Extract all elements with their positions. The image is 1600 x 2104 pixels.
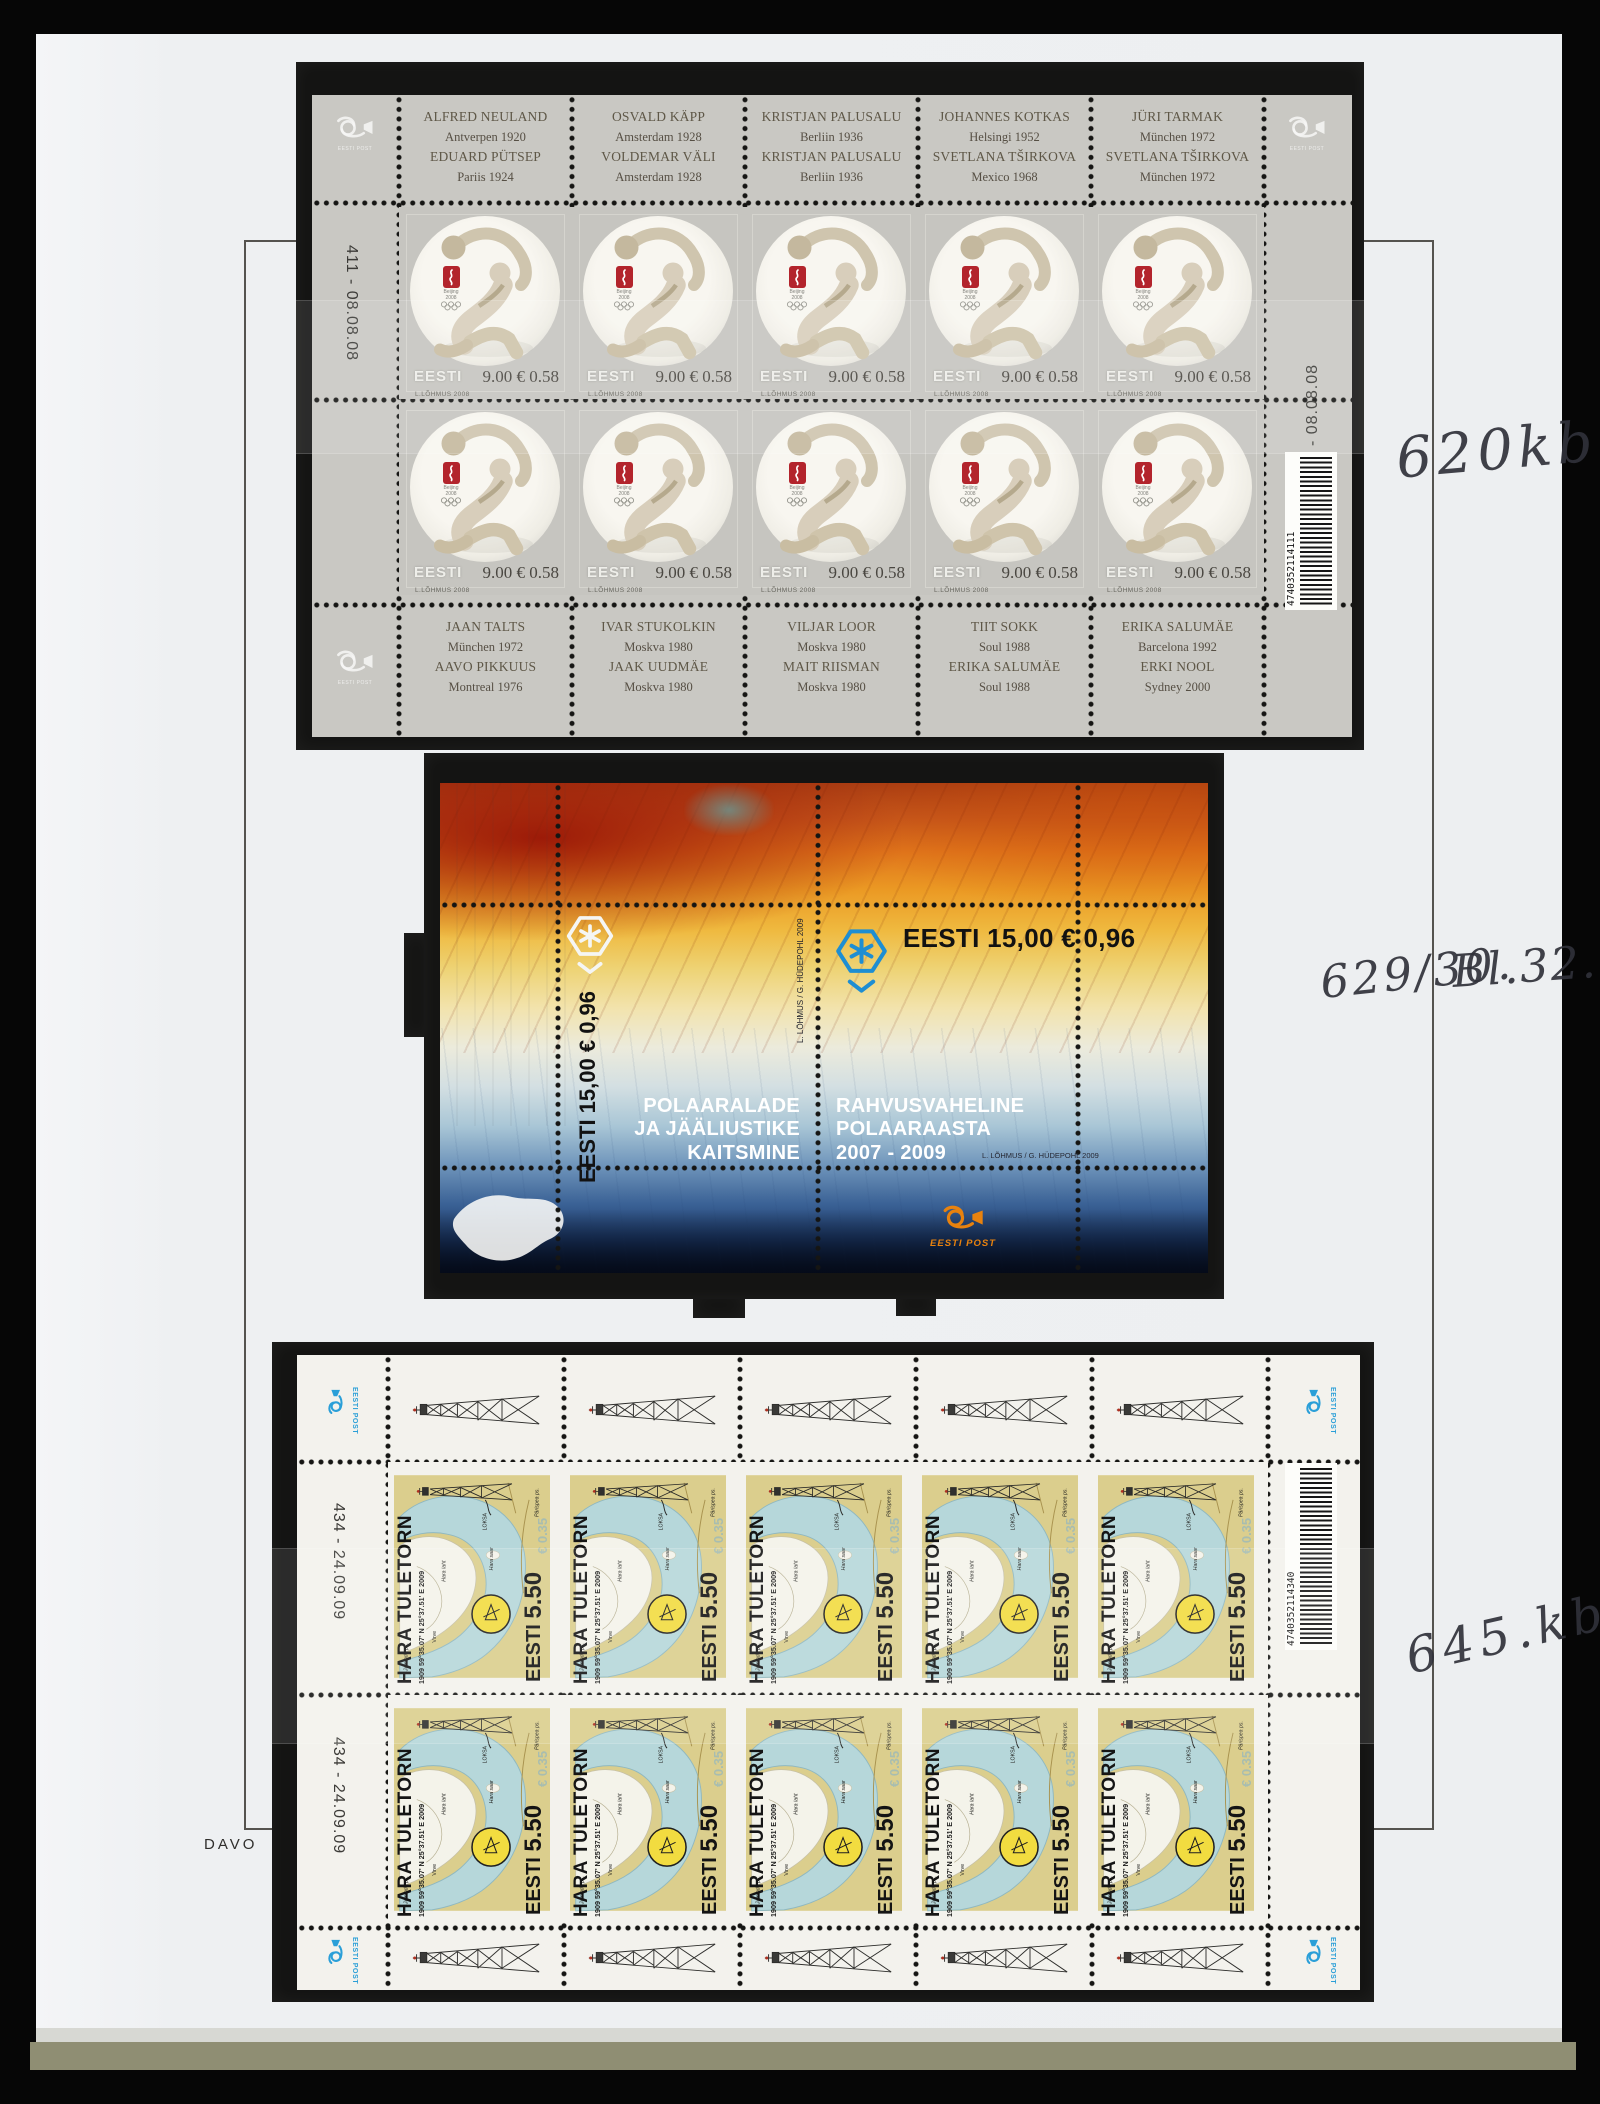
lighthouse-lattice-icon — [411, 1939, 541, 1977]
page-stack-edge — [36, 2028, 1562, 2042]
stamp-country: EESTI — [760, 564, 808, 581]
beijing-emblem-seal — [1135, 266, 1152, 288]
perforation — [1075, 783, 1081, 1273]
eesti-post-logo-blue: EESTI POST — [321, 1385, 365, 1434]
eesti-post-ghost-logo: EESTI POST — [328, 113, 382, 152]
stamp-credit: L.LÕHMUS 2008 — [588, 587, 643, 594]
olympic-rings-icon — [958, 497, 982, 507]
perforation — [440, 1165, 1208, 1171]
svg-text:Virve: Virve — [960, 1864, 966, 1876]
medallist-label: ALFRED NEULANDAntverpen 1920EDUARD PÜTSE… — [399, 107, 572, 186]
svg-text:Hara saar: Hara saar — [1193, 1780, 1199, 1803]
svg-text:Virve: Virve — [1136, 1864, 1142, 1876]
stamp-value: 9.00 € 0.58 — [483, 563, 560, 583]
beijing-2008-text: Beijing 2008 — [611, 485, 637, 497]
eesti-post-logo-blue: EESTI POST — [1299, 1385, 1343, 1434]
stamp-title: HARA TULETORN — [1099, 1717, 1123, 1917]
stamp-country-value: EESTI 5.50 — [872, 1723, 900, 1915]
svg-text:LOKSA: LOKSA — [658, 1745, 664, 1763]
lighthouse-lattice-icon — [587, 1939, 717, 1977]
posthorn-icon — [1284, 113, 1330, 141]
beijing-2008-emblem: Beijing 2008 — [957, 462, 983, 507]
dancing-figure-icon — [443, 266, 460, 288]
stamp-credit: L.LÕHMUS 2008 — [934, 587, 989, 594]
svg-text:LOKSA: LOKSA — [834, 1512, 840, 1530]
posthorn-icon — [1297, 1937, 1331, 1967]
beijing-emblem-seal — [789, 266, 806, 288]
svg-text:Hara saar: Hara saar — [841, 1780, 847, 1803]
posthorn-icon — [332, 647, 378, 675]
eesti-post-logo-blue: EESTI POST — [1299, 1935, 1343, 1984]
stamp-value: 9.00 € 0.58 — [1175, 563, 1252, 583]
beijing-2008-text: Beijing 2008 — [438, 485, 464, 497]
medallist-label: TIIT SOKKSoul 1988ERIKA SALUMÄESoul 1988 — [918, 617, 1091, 696]
posthorn-icon — [1297, 1387, 1331, 1417]
dancing-figure-icon — [616, 266, 633, 288]
handwritten-note-2b: Bl.32. — [1450, 935, 1599, 998]
svg-text:LOKSA: LOKSA — [1010, 1745, 1016, 1763]
svg-text:Hara saar: Hara saar — [665, 1780, 671, 1803]
stamp-credit: L.LÕHMUS 2008 — [415, 587, 470, 594]
lighthouse-lattice-icon — [1115, 1939, 1245, 1977]
svg-text:Virve: Virve — [432, 1864, 438, 1876]
eesti-post-logo-orange: EESTI POST — [918, 1203, 1008, 1249]
medallist-label: KRISTJAN PALUSALUBerliin 1936KRISTJAN PA… — [745, 107, 918, 186]
beijing-emblem-seal — [443, 462, 460, 484]
stamp-country: EESTI — [933, 564, 981, 581]
svg-text:LOKSA: LOKSA — [658, 1512, 664, 1530]
beijing-emblem-seal — [1135, 462, 1152, 484]
svg-text:LOKSA: LOKSA — [1186, 1745, 1192, 1763]
beijing-emblem-seal — [616, 266, 633, 288]
barcode-bars — [1300, 457, 1332, 605]
perforation — [312, 200, 1352, 206]
perforation — [815, 783, 821, 1273]
svg-text:Hara laht: Hara laht — [793, 1793, 799, 1815]
beijing-emblem-seal — [616, 462, 633, 484]
left-stamp-caption: POLAARALADE JA JÄÄLIUSTIKE KAITSMINE — [615, 1095, 800, 1165]
olympic-rings-icon — [439, 497, 463, 507]
beijing-2008-emblem: Beijing 2008 — [784, 462, 810, 507]
designer-credit: L. LÕHMUS / G. HÜDEPOHL 2009 — [982, 1151, 1099, 1160]
stamp-country-value: EESTI 5.50 — [1048, 1723, 1076, 1915]
plate-number-left: 434 - 24.09.09 — [329, 1737, 347, 1922]
stamp-coordinates: 1909 59°35.07' N 25°37.51' E 2009 — [593, 1719, 605, 1917]
svg-text:Hara saar: Hara saar — [489, 1780, 495, 1803]
davo-brand-label: DAVO — [204, 1836, 257, 1853]
lighthouse-lattice-icon — [939, 1391, 1069, 1429]
scanned-album-photo: DAVO EESTI POST EESTI POST EESTI POST 41… — [0, 0, 1600, 2104]
svg-text:LOKSA: LOKSA — [482, 1512, 488, 1530]
olympic-rings-icon — [612, 497, 636, 507]
beijing-2008-emblem: Beijing 2008 — [438, 462, 464, 507]
perforation — [312, 602, 1352, 608]
svg-text:Hara laht: Hara laht — [1145, 1793, 1151, 1815]
stamp-credit: L.LÕHMUS 2008 — [1107, 587, 1162, 594]
polar-souvenir-sheet: EESTI 15,00 € 0,96 EESTI 15,00 € 0,96 L.… — [440, 783, 1208, 1273]
medallist-label: ERIKA SALUMÄEBarcelona 1992ERKI NOOLSydn… — [1091, 617, 1264, 696]
stamp-country: EESTI — [1106, 564, 1154, 581]
barcode-digits: 4740352114111 — [1286, 456, 1297, 606]
dancing-figure-icon — [1135, 462, 1152, 484]
beijing-emblem-seal — [789, 462, 806, 484]
posthorn-icon — [319, 1937, 353, 1967]
beijing-emblem-seal — [962, 462, 979, 484]
page-stack-edge-lower — [30, 2042, 1576, 2070]
stamp-coordinates: 1909 59°35.07' N 25°37.51' E 2009 — [417, 1719, 429, 1917]
lighthouse-lattice-icon — [411, 1391, 541, 1429]
stamp-value: 9.00 € 0.58 — [829, 563, 906, 583]
mount-film-seam — [296, 300, 1364, 454]
beijing-2008-text: Beijing 2008 — [1130, 485, 1156, 497]
beijing-2008-text: Beijing 2008 — [784, 485, 810, 497]
stamp-title: HARA TULETORN — [395, 1717, 419, 1917]
stamp-country: EESTI — [414, 564, 462, 581]
polar-year-logo-white — [565, 913, 615, 977]
dancing-figure-icon — [443, 462, 460, 484]
lighthouse-lattice-icon — [939, 1939, 1069, 1977]
sheet2-value-vertical: EESTI 15,00 € 0,96 — [575, 978, 601, 1183]
sheet2-value: EESTI 15,00 € 0,96 — [903, 923, 1135, 954]
svg-text:Hara laht: Hara laht — [969, 1793, 975, 1815]
stamp-title: HARA TULETORN — [923, 1717, 947, 1917]
svg-text:Virve: Virve — [608, 1864, 614, 1876]
stamp-title: HARA TULETORN — [571, 1717, 595, 1917]
medallist-label: VILJAR LOORMoskva 1980MAIT RIISMANMoskva… — [745, 617, 918, 696]
beijing-2008-emblem: Beijing 2008 — [1130, 462, 1156, 507]
medallist-label: OSVALD KÄPPAmsterdam 1928VOLDEMAR VÄLIAm… — [572, 107, 745, 186]
svg-text:LOKSA: LOKSA — [834, 1745, 840, 1763]
beijing-emblem-seal — [962, 266, 979, 288]
beijing-emblem-seal — [443, 266, 460, 288]
olympic-rings-icon — [785, 497, 809, 507]
eesti-post-logo-blue: EESTI POST — [321, 1935, 365, 1984]
posthorn-icon — [332, 113, 378, 141]
dancing-figure-icon — [962, 266, 979, 288]
perforation — [440, 902, 1208, 908]
lighthouse-lattice-icon — [587, 1391, 717, 1429]
polar-year-logo-blue — [834, 926, 889, 996]
posthorn-icon — [319, 1387, 353, 1417]
stamp-credit: L.LÕHMUS 2008 — [761, 587, 816, 594]
stamp-country: EESTI — [587, 564, 635, 581]
stamp-coordinates: 1909 59°35.07' N 25°37.51' E 2009 — [945, 1719, 957, 1917]
eesti-post-ghost-logo: EESTI POST — [1280, 113, 1334, 152]
beijing-2008-emblem: Beijing 2008 — [611, 462, 637, 507]
stamp-value: 9.00 € 0.58 — [1002, 563, 1079, 583]
dancing-figure-icon — [1135, 266, 1152, 288]
stamp-value: 9.00 € 0.58 — [656, 563, 733, 583]
dancing-figure-icon — [616, 462, 633, 484]
stamp-title: HARA TULETORN — [747, 1717, 771, 1917]
designer-credit-vertical: L. LÕHMUS / G. HÜDEPOHL 2009 — [796, 918, 805, 1043]
lighthouse-lattice-icon — [763, 1939, 893, 1977]
posthorn-icon — [937, 1203, 989, 1233]
stamp-country-value: EESTI 5.50 — [696, 1723, 724, 1915]
svg-text:LOKSA: LOKSA — [1186, 1512, 1192, 1530]
medallist-label: JOHANNES KOTKASHelsingi 1952SVETLANA TŠI… — [918, 107, 1091, 186]
stamp-coordinates: 1909 59°35.07' N 25°37.51' E 2009 — [1121, 1719, 1133, 1917]
perforation — [297, 1925, 1360, 1931]
barcode: 4740352114111 — [1285, 452, 1337, 610]
dancing-figure-icon — [789, 266, 806, 288]
lighthouse-lattice-icon — [1115, 1391, 1245, 1429]
eesti-post-ghost-logo: EESTI POST — [328, 647, 382, 686]
dancing-figure-icon — [962, 462, 979, 484]
medallist-label: JAAN TALTSMünchen 1972AAVO PIKKUUSMontre… — [399, 617, 572, 696]
stamp-coordinates: 1909 59°35.07' N 25°37.51' E 2009 — [769, 1719, 781, 1917]
dancing-figure-icon — [789, 462, 806, 484]
svg-text:Virve: Virve — [784, 1864, 790, 1876]
svg-text:Hara laht: Hara laht — [441, 1793, 447, 1815]
svg-text:Hara saar: Hara saar — [1017, 1780, 1023, 1803]
medallist-label: JÜRI TARMAKMünchen 1972SVETLANA TŠIRKOVA… — [1091, 107, 1264, 186]
svg-text:LOKSA: LOKSA — [1010, 1512, 1016, 1530]
perforation — [555, 783, 561, 1273]
lighthouse-lattice-icon — [763, 1391, 893, 1429]
svg-text:Hara laht: Hara laht — [617, 1793, 623, 1815]
medallist-label: IVAR STUKOLKINMoskva 1980JAAK UUDMÄEMosk… — [572, 617, 745, 696]
mount-film-seam — [272, 1548, 1374, 1744]
stamp-country-value: EESTI 5.50 — [520, 1723, 548, 1915]
olympic-rings-icon — [1131, 497, 1155, 507]
svg-text:LOKSA: LOKSA — [482, 1745, 488, 1763]
antarctica-map — [446, 1181, 571, 1267]
teal-smudge — [685, 785, 773, 835]
beijing-2008-text: Beijing 2008 — [957, 485, 983, 497]
stamp-country-value: EESTI 5.50 — [1224, 1723, 1252, 1915]
